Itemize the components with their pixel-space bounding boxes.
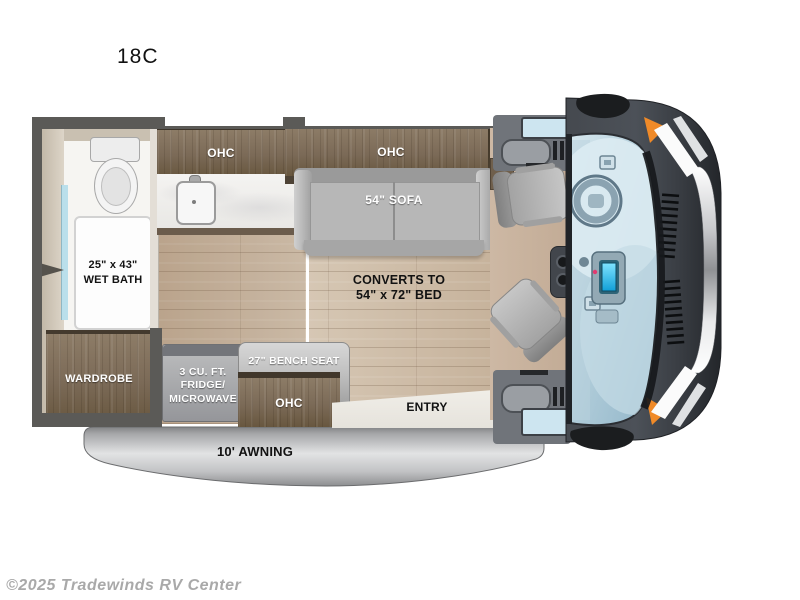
mid-wall <box>150 328 162 427</box>
sofa-label: 54" SOFA <box>294 193 494 207</box>
rear-door-window <box>61 185 68 320</box>
mirror-bottom <box>570 426 634 450</box>
sink-drain <box>192 200 196 204</box>
cab-door-bottom-trim <box>520 370 548 375</box>
fridge-label-line3: MICROWAVE <box>169 393 237 407</box>
cab-door-top-handle <box>501 139 551 166</box>
counter-cabinet-face <box>157 228 300 235</box>
ohc-bench: OHC <box>238 372 340 427</box>
ohc-sofa-label: OHC <box>377 145 405 159</box>
steering-hub <box>588 194 604 208</box>
sofa: 54" SOFA <box>294 168 494 262</box>
sofa-cushions <box>310 182 480 244</box>
awning-label: 10' AWNING <box>180 444 330 459</box>
sofa-cushion-seam <box>393 182 395 242</box>
fridge-label-line2: FRIDGE/ <box>181 379 226 393</box>
model-title: 18C <box>117 45 159 69</box>
bed-label-line2: 54" x 72" BED <box>356 288 442 303</box>
fridge-top-lip <box>163 345 243 356</box>
wet-bath-label-line2: WET BATH <box>84 273 143 288</box>
van-front <box>545 88 730 456</box>
wet-bath-label-line1: 25" x 43" <box>89 258 138 273</box>
kitchen-sink <box>176 181 216 225</box>
entry-label: ENTRY <box>392 400 462 414</box>
fridge-label-line1: 3 CU. FT. <box>179 366 226 380</box>
bench-seat-label: 27" BENCH SEAT <box>239 355 349 367</box>
sofa-skirt <box>304 240 484 256</box>
wardrobe-cabinet: WARDROBE <box>46 330 152 423</box>
toilet-seat <box>101 167 131 206</box>
infotainment-screen <box>602 263 616 291</box>
dealer-watermark: ©2025 Tradewinds RV Center <box>6 577 241 595</box>
rear-wall <box>32 117 42 427</box>
hazard-light <box>593 270 597 274</box>
bed-label-line1: CONVERTS TO <box>353 273 445 288</box>
bottom-wall <box>32 413 162 427</box>
floorplan-canvas: 18C 10' AWNING CONVERTS TO 54" x 72" BED… <box>0 0 800 600</box>
bed-conversion-label: CONVERTS TO 54" x 72" BED <box>306 270 492 306</box>
top-window-2 <box>305 117 497 126</box>
shower-pan: 25" x 43" WET BATH <box>74 216 152 330</box>
ohc-galley-label: OHC <box>207 146 235 160</box>
ohc-bench-label: OHC <box>275 396 303 410</box>
top-window-1 <box>165 117 283 126</box>
awning-shape <box>76 426 548 492</box>
fridge-microwave: 3 CU. FT. FRIDGE/ MICROWAVE <box>162 344 244 422</box>
wardrobe-label: WARDROBE <box>65 373 133 385</box>
gear-knob <box>579 257 589 267</box>
